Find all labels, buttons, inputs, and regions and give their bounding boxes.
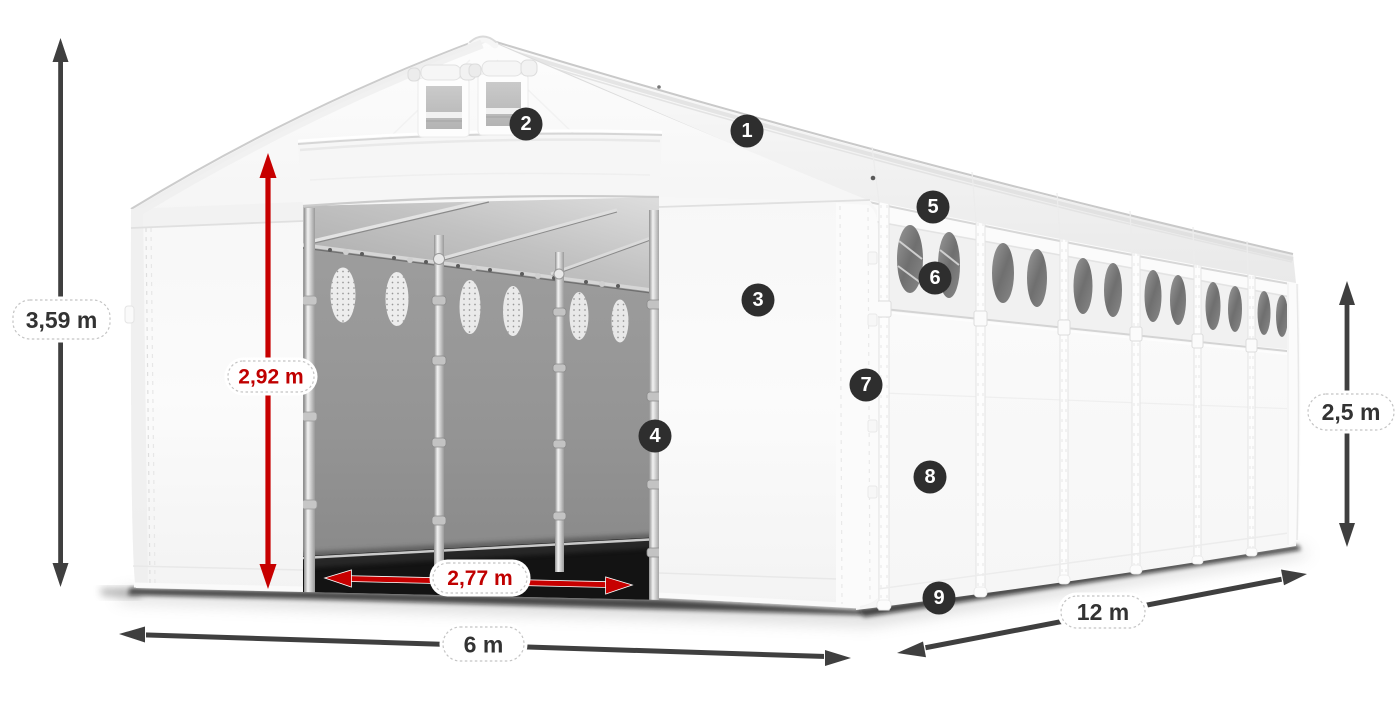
svg-text:3,59 m: 3,59 m <box>26 307 98 333</box>
svg-text:9: 9 <box>933 587 944 609</box>
svg-text:7: 7 <box>860 374 871 396</box>
svg-text:5: 5 <box>927 196 938 218</box>
svg-text:2,77 m: 2,77 m <box>447 567 512 590</box>
svg-text:6 m: 6 m <box>464 632 504 658</box>
svg-text:4: 4 <box>649 425 661 447</box>
svg-text:12 m: 12 m <box>1077 599 1129 625</box>
svg-text:3: 3 <box>752 289 763 311</box>
svg-text:2: 2 <box>520 113 531 135</box>
svg-text:2,5 m: 2,5 m <box>1322 399 1381 425</box>
svg-text:2,92 m: 2,92 m <box>238 366 303 389</box>
svg-text:1: 1 <box>741 120 752 142</box>
svg-text:6: 6 <box>929 267 940 289</box>
svg-text:8: 8 <box>924 466 935 488</box>
